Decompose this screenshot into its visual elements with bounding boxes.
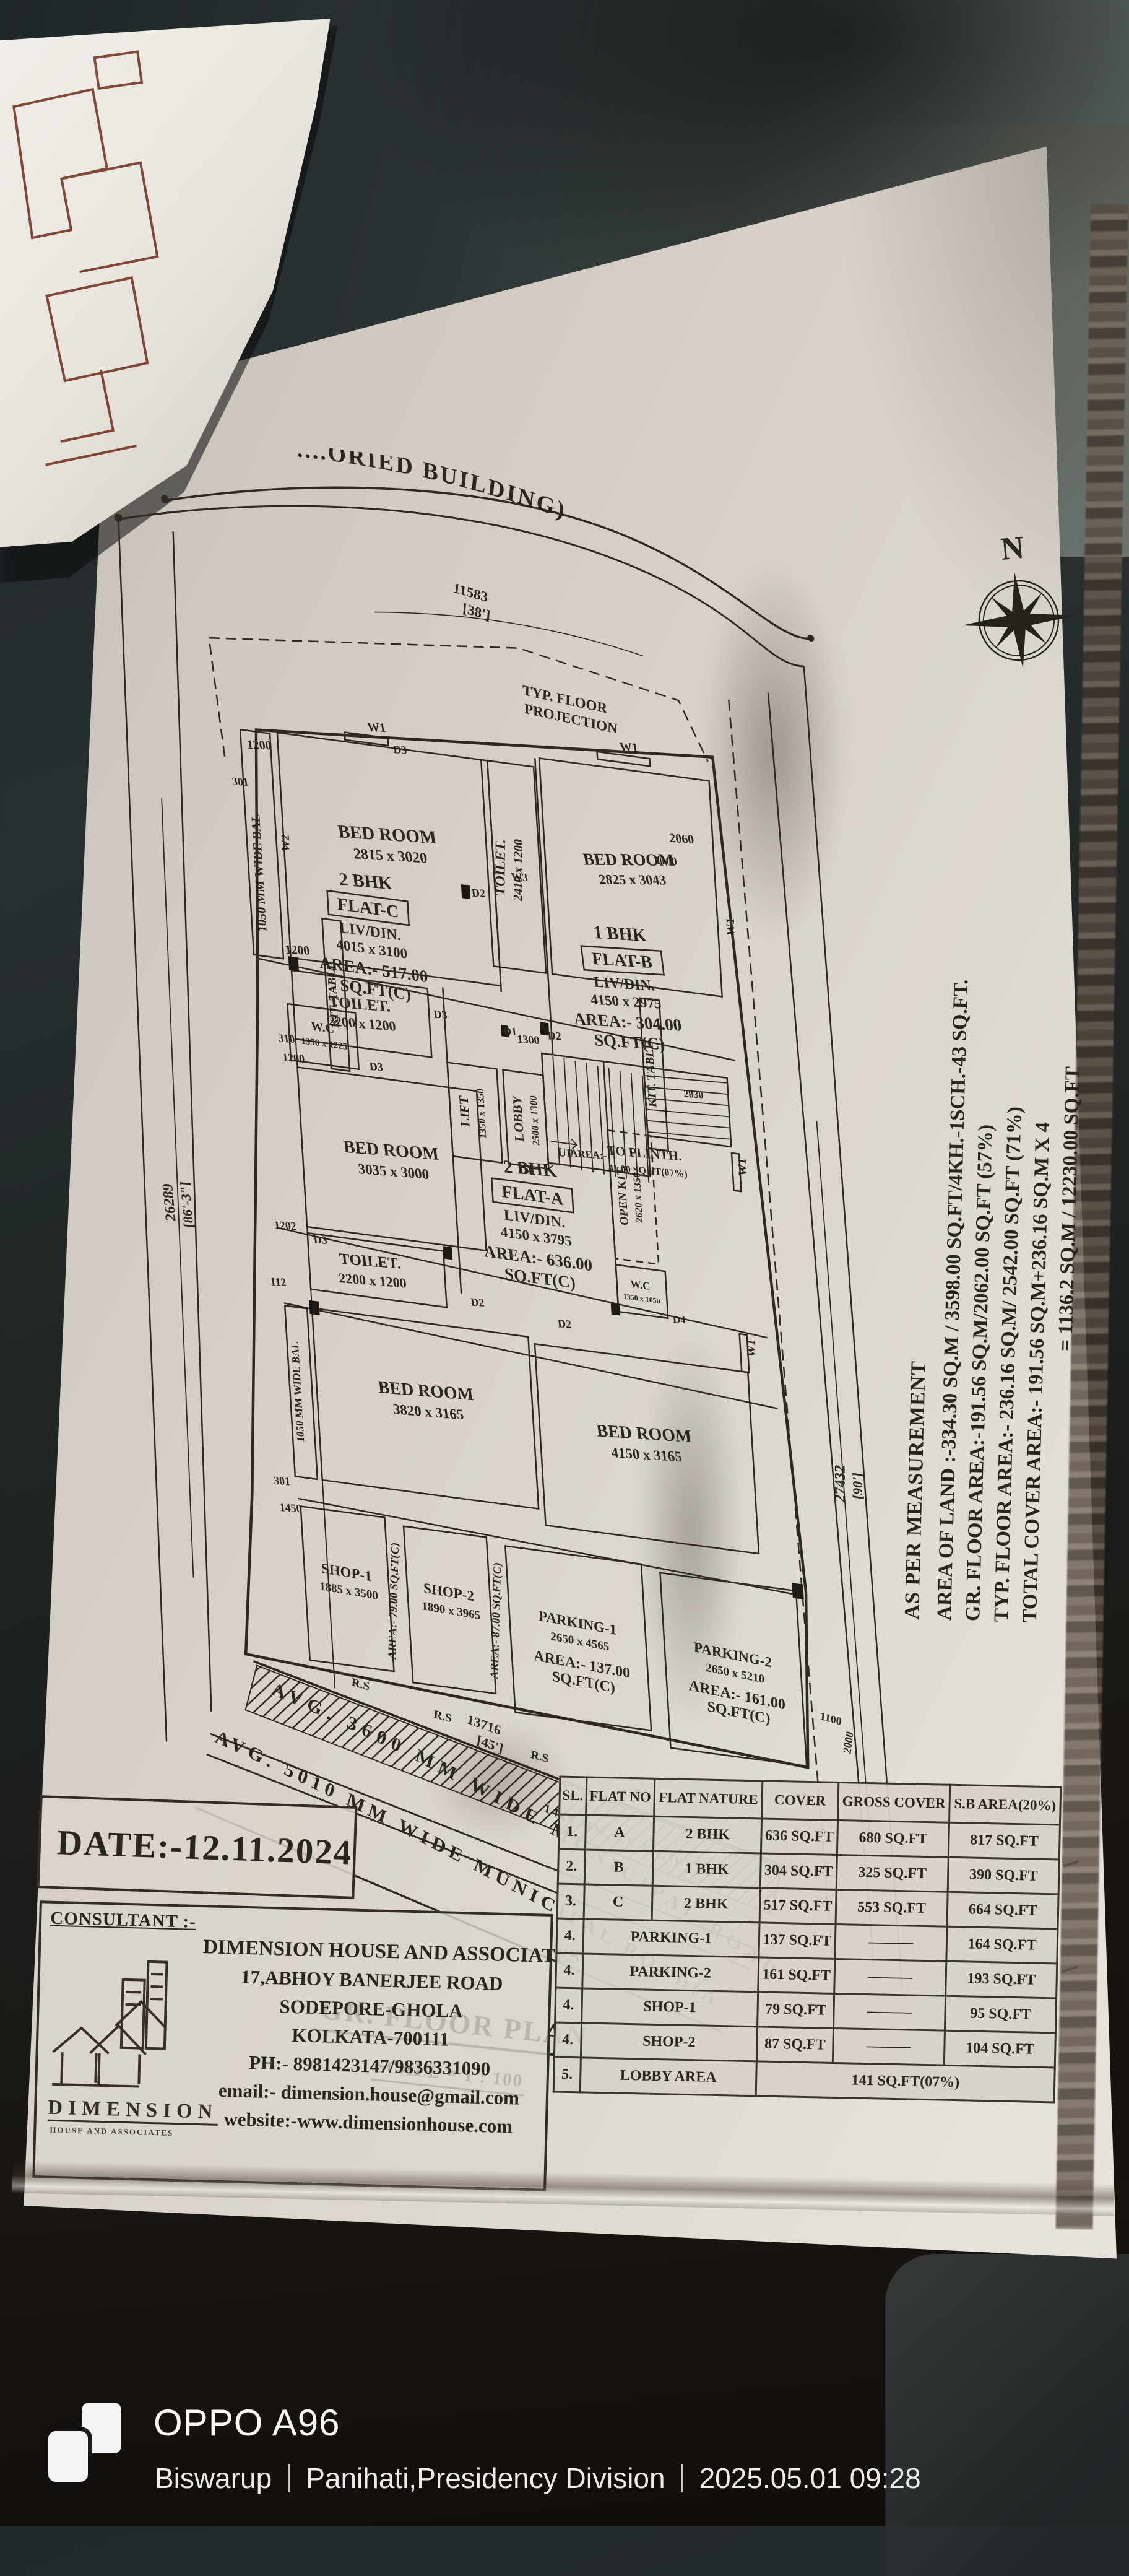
cell: 4. [555,1988,582,2023]
cell: 1 BHK [652,1851,761,1888]
col-flat-no: FLAT NO [586,1777,655,1816]
cell: 325 SQ.FT [836,1855,949,1892]
tag-d2-b: D2 [547,1029,562,1043]
dim-1450: 1450 [279,1501,302,1515]
consultant-label: CONSULTANT :- [50,1908,196,1933]
lift-label: LIFT [456,1095,473,1128]
rs-2: R.S [433,1708,452,1725]
cell: 137 SQ.FT [759,1923,836,1959]
cell: 517 SQ.FT [759,1888,836,1925]
cell: ——— [834,1959,946,1996]
cell: 4. [554,2022,581,2058]
col-cover: COVER [762,1781,839,1821]
bedroom1-size: 2815 x 3020 [352,845,428,867]
cell: 817 SQ.FT [949,1822,1060,1860]
cell: 2 BHK [654,1816,762,1853]
dim-1202: 1202 [274,1219,297,1232]
cell: 4. [556,1953,583,1988]
typ-floor-projection [205,582,711,822]
logo-word: DIMENSION [48,2097,218,2126]
wc1-size: 1350 x 1225 [301,1036,348,1052]
date-box: DATE:-12.11.2024 [37,1795,358,1899]
tag-w1-b: W1 [619,741,639,755]
tag-d2-a: D2 [471,886,486,900]
oppo-watermark-icon [48,2403,121,2482]
chair-shape [885,2254,1129,2576]
dim-310: 310 [277,1032,295,1045]
cell: 1. [558,1814,586,1850]
dim-112: 112 [269,1275,287,1289]
cell: SHOP-2 [581,2023,758,2061]
cell: 141 SQ.FT(07%) [756,2061,1055,2102]
watermark-divider [288,2464,290,2492]
dim-left: 26289 [159,1183,179,1222]
watermark-owner: Biswarup [155,2461,272,2495]
compass-rose [958,567,1081,674]
cell: SHOP-1 [581,1988,758,2027]
cell: 680 SQ.FT [837,1820,949,1857]
cell: C [584,1884,653,1920]
toilet-top-size: 2410 x 1200 [511,838,526,902]
cell: 5. [553,2057,581,2092]
rs-3: R.S [530,1748,549,1765]
tag-w1-d: W1 [736,1157,750,1177]
north-letter: N [1000,530,1026,567]
dim-1200b: 1200 [284,942,310,958]
flatb-liv: LIV/DIN. [592,973,655,994]
stair-dim: 2830 [683,1089,704,1101]
cell: 553 SQ.FT [836,1889,948,1926]
cell: 2 BHK [652,1886,760,1923]
col-gross-cover: GROSS COVER [837,1782,950,1822]
cell: 164 SQ.FT [946,1926,1058,1964]
cell: ——— [833,2028,945,2065]
dim-1100a: 1100 [655,854,678,868]
cell: A [585,1815,654,1851]
cell: ——— [833,1993,946,2030]
cell: 304 SQ.FT [760,1853,837,1890]
toilet2-size: 2200 x 1200 [338,1270,407,1291]
openkit-2: 2620 x 1350 [632,1172,646,1224]
dim-top: 11583 [452,580,488,606]
tag-d2-c: D2 [470,1295,485,1309]
tag-d4: D4 [672,1313,686,1326]
bedroom3-size: 3035 x 3000 [357,1161,430,1183]
watermark-location: Panihati,Presidency Division [306,2461,665,2495]
bedroom3-name: BED ROOM [342,1138,439,1165]
cell: ——— [834,1924,947,1961]
date-text: DATE:-12.11.2024 [40,1822,353,1873]
shop2-area: AREA:- 87.00 SQ.FT(C) [488,1561,504,1680]
col-sl: SL. [560,1777,587,1815]
dim-301a: 301 [231,775,249,788]
flatb-name: FLAT-B [591,949,654,972]
cell: 4. [556,1918,584,1954]
flatb-type: 1 BHK [592,923,648,946]
flatb-area: AREA:- 304.00 [573,1009,683,1035]
watermark-info: Biswarup Panihati,Presidency Division 20… [155,2461,921,2495]
cell: LOBBY AREA [580,2058,757,2096]
bedroom5-name: BED ROOM [595,1421,693,1447]
north-arrow: N [948,529,1088,685]
cell: 95 SQ.FT [945,1996,1057,2033]
watermark-device: OPPO A96 [154,2401,340,2444]
tag-w3: W3 [510,871,529,884]
cell: PARKING-2 [582,1954,759,1992]
toilet-top-name: TOILET. [492,838,509,898]
cell: PARKING-1 [582,1919,759,1957]
cell: 636 SQ.FT [761,1819,838,1855]
dim-2000: 2000 [841,1730,856,1756]
col-sb-area: S.B AREA(20%) [949,1785,1061,1825]
cell: 87 SQ.FT [757,2027,834,2063]
area-statement-table: SL. FLAT NO FLAT NATURE COVER GROSS COVE… [553,1776,1062,2104]
logo-subtext: HOUSE AND ASSOCIATES [50,2125,174,2138]
measurement-notes: AS PER MEASUREMENT AREA OF LAND :-334.30… [901,805,1094,1624]
bedroom4-name: BED ROOM [377,1378,474,1405]
tag-d1-b: D1 [518,1163,533,1177]
consultant-box: CONSULTANT :- DIMENSION HOUSE AND ASSOCI… [32,1900,553,2191]
dim-301b: 301 [273,1474,291,1488]
dim-1100b: 1100 [820,1710,842,1728]
cell: B [584,1850,654,1886]
cell: 193 SQ.FT [946,1961,1057,1998]
cell: 161 SQ.FT [758,1957,835,1994]
cell: 104 SQ.FT [945,2030,1056,2068]
tag-w1-e: W1 [745,1338,758,1358]
lobby-label: LOBBY [509,1094,527,1142]
wc2-size: 1350 x 1050 [623,1292,660,1305]
dim-1200c: 1200 [282,1051,305,1064]
tag-w2: W2 [279,833,292,852]
tag-w1-c: W1 [724,917,738,937]
logo-houses-icon [46,1941,204,2099]
lift-size: 1350 x 1350 [475,1088,489,1139]
flatb-size: 4150 x 2975 [590,991,662,1012]
dim-1200a: 1200 [246,738,272,753]
flatc-type: 2 BHK [338,869,393,894]
wc1-name: W.C [311,1019,335,1036]
tag-d1-a: D1 [503,1025,517,1038]
tag-d3-c: D3 [313,1233,327,1247]
tag-d2-d: D2 [557,1317,572,1331]
cell: 2. [558,1849,585,1884]
cell: 3. [557,1884,584,1919]
dim-left-ft: [86'-3"] [177,1181,197,1229]
tag-d3-a: D3 [433,1008,448,1022]
firm-address: DIMENSION HOUSE AND ASSOCIATES 17,ABHOY … [198,1932,542,2141]
watermark-divider [681,2464,683,2492]
shop1-area: AREA:- 79.00 SQ.FT(C) [386,1541,402,1660]
cell: 664 SQ.FT [947,1892,1058,1929]
cell: 79 SQ.FT [758,1992,834,2029]
tag-d3-b: D3 [369,1060,384,1074]
dim-2060: 2060 [668,832,694,847]
wc2-name: W.C [630,1278,651,1292]
lobby-size: 2500 x 1300 [529,1095,542,1146]
firm-logo: DIMENSION HOUSE AND ASSOCIATES [45,1941,205,2149]
bedroom4-size: 3820 x 3165 [392,1401,464,1423]
dim-right: 27432 [832,1463,849,1503]
plinth-area-word: AREA:- [569,1147,607,1162]
tag-w1-a: W1 [366,720,387,735]
cell: 390 SQ.FT [948,1857,1059,1894]
bedroom2-size: 2825 x 3043 [597,871,667,887]
plinth-label: TO PLINTH. [607,1142,683,1164]
watermark-datetime: 2025.05.01 09:28 [699,2461,921,2495]
bedroom5-size: 4150 x 3165 [610,1445,683,1465]
col-flat-nature: FLAT NATURE [654,1778,763,1819]
dim-right-ft: [90'] [850,1471,865,1500]
tag-d3-d: D3 [392,743,407,757]
dim-1300: 1300 [516,1033,540,1046]
bedroom1-name: BED ROOM [337,822,438,848]
